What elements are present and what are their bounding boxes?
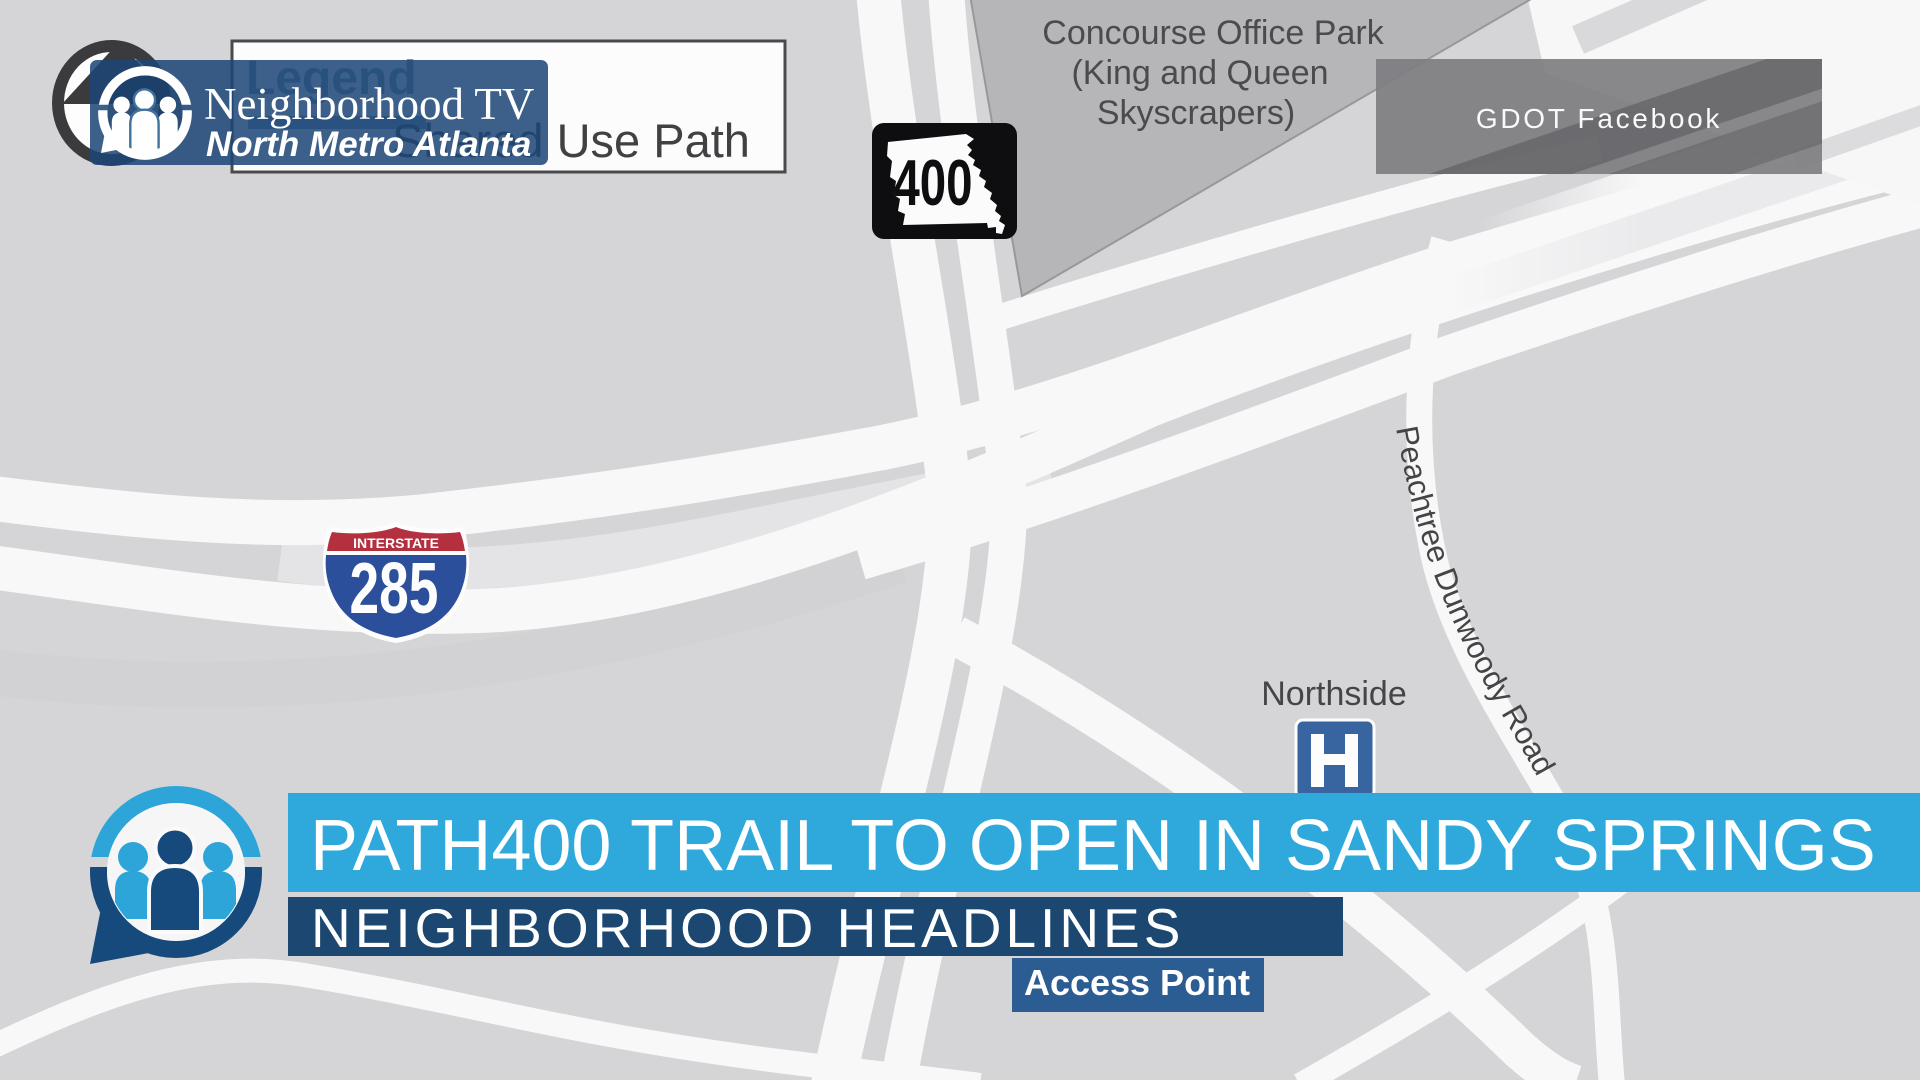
svg-text:Northside: Northside (1261, 675, 1407, 713)
svg-text:PATH400 TRAIL TO OPEN IN SANDY: PATH400 TRAIL TO OPEN IN SANDY SPRINGS (310, 806, 1876, 886)
svg-text:Concourse Office Park: Concourse Office Park (1042, 14, 1384, 52)
svg-text:GDOT Facebook: GDOT Facebook (1476, 103, 1722, 134)
svg-text:400: 400 (893, 147, 972, 220)
svg-text:285: 285 (350, 549, 439, 629)
svg-text:(King and Queen: (King and Queen (1071, 54, 1328, 92)
svg-text:Access Point: Access Point (1024, 962, 1250, 1003)
svg-text:NEIGHBORHOOD HEADLINES: NEIGHBORHOOD HEADLINES (311, 897, 1184, 959)
svg-text:Skyscrapers): Skyscrapers) (1097, 94, 1295, 132)
svg-text:Neighborhood TV: Neighborhood TV (204, 79, 534, 129)
svg-text:North Metro Atlanta: North Metro Atlanta (206, 125, 531, 164)
